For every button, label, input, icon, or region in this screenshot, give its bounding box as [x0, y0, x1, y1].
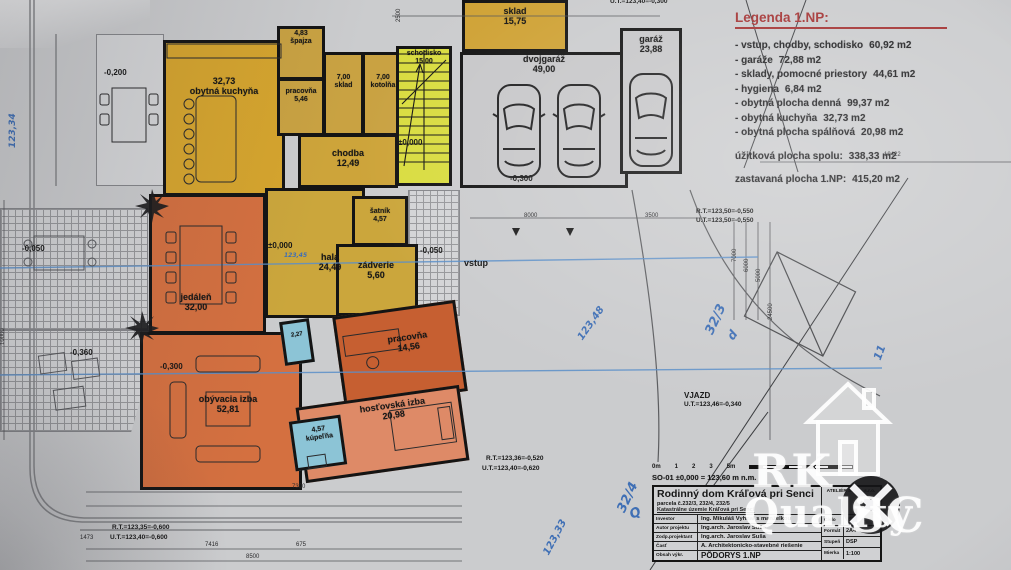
label-living: obývacia izba 52,81: [162, 394, 294, 414]
tb-meta-scale: Mierka1:100: [822, 548, 880, 559]
legend-item: - obytná plocha spálňová20,98 m2: [735, 126, 1007, 141]
floorplan-photo: 32,73 obytná kuchyňa 4,83 špajza pracovň…: [0, 0, 1011, 570]
legend-title: Legenda 1.NP:: [735, 10, 947, 29]
dim-7000: 7000: [732, 249, 738, 262]
survey-ut-mid: U.T.=123,40=-0,620: [482, 465, 539, 472]
label-vestibule: zádverie 5,60: [337, 260, 415, 280]
label-dining: jedáleň 32,00: [156, 292, 236, 312]
kitchen-name: obytná kuchyňa: [165, 86, 283, 96]
legend-item: - obytná kuchyňa32,73 m2: [735, 112, 1007, 127]
survey-ut-left: U.T.=123,40=-0,600: [110, 534, 167, 541]
level-terrace-w: -0,050: [22, 244, 45, 253]
tb-row-part: ČasťA. Architektonicko-stavebné riešenie: [654, 542, 821, 551]
survey-rt-left: R.T.=123,35=-0,600: [112, 524, 169, 531]
dim-8000: 8000: [524, 213, 537, 219]
label-corridor: chodba 12,49: [300, 148, 396, 168]
label-wardrobe: šatník 4,57: [353, 208, 407, 224]
legend-total-built: zastavaná plocha 1.NP:415,20 m2: [735, 173, 1007, 188]
dim-5000: 5000: [756, 269, 762, 282]
legend-item: - sklady, pomocné priestory44,61 m2: [735, 68, 1007, 83]
measure-note-123-34: 123,34: [8, 113, 18, 148]
label-pantry: 4,83 špajza: [278, 30, 324, 46]
kitchen-area: 32,73: [165, 76, 283, 86]
legend-total-usable: úžitková plocha spolu:338,33 m2: [735, 150, 1007, 165]
dim-2500: 2500: [396, 9, 402, 22]
legend-item: - garáže72,88 m2: [735, 54, 1007, 69]
measure-note-123-45: 123,45: [284, 252, 307, 259]
dim-10000: 10000: [0, 328, 6, 345]
watermark-sc: SC: [850, 488, 925, 544]
label-boiler: 7,00 kotolňa: [362, 74, 404, 90]
survey-ut-right: U.T.=123,50=-0,550: [696, 217, 753, 224]
dim-7416: 7416: [205, 542, 218, 548]
label-utility-office: pracovňa 5,46: [276, 88, 326, 104]
dim-7300: 7300: [292, 484, 305, 490]
level-living: -0,300: [160, 362, 183, 371]
legend-item: - hygiena6,84 m2: [735, 83, 1007, 98]
dim-1473: 1473: [80, 535, 93, 541]
level-paved-strip: -0,050: [420, 246, 443, 255]
level-hall: ±0,000: [268, 241, 292, 250]
legend-item: - vstup, chodby, schodisko60,92 m2: [735, 39, 1007, 54]
legend-item: - obytná plocha denná99,37 m2: [735, 97, 1007, 112]
dim-24500: 24500: [768, 303, 774, 320]
survey-ut-top: U.T.=123,40=-0,300: [610, 0, 667, 5]
level-terrace-nw: -0,200: [104, 68, 127, 77]
driveway-label: VJAZD: [684, 391, 710, 400]
legend: Legenda 1.NP: - vstup, chodby, schodisko…: [735, 10, 1007, 188]
label-garage: garáž 23,88: [621, 34, 681, 54]
entry-label: vstup: [464, 258, 488, 268]
survey-rt-right: R.T.=123,50=-0,550: [696, 208, 753, 215]
dim-8500: 8500: [246, 554, 259, 560]
tb-row-content: Obsah výkr.PÔDORYS 1.NP: [654, 551, 821, 560]
label-storage-1: 7,00 sklad: [323, 74, 364, 90]
label-double-garage: dvojgaráž 49,00: [482, 54, 606, 74]
label-storage-2: sklad 15,75: [470, 6, 560, 26]
level-garage: -0,300: [510, 174, 533, 183]
level-staircase: ±0,000: [398, 138, 422, 147]
label-kitchen: 32,73 obytná kuchyňa: [165, 76, 283, 96]
label-staircase: schodisko 15,00: [397, 50, 451, 66]
dim-3500: 3500: [645, 213, 658, 219]
driveway-level: U.T.=123,46=-0,340: [684, 401, 741, 408]
dim-6000: 6000: [744, 259, 750, 272]
survey-rt-mid: R.T.=123,36=-0,520: [486, 455, 543, 462]
dim-675: 675: [296, 542, 306, 548]
level-terrace-sw: -0,360: [70, 348, 93, 357]
